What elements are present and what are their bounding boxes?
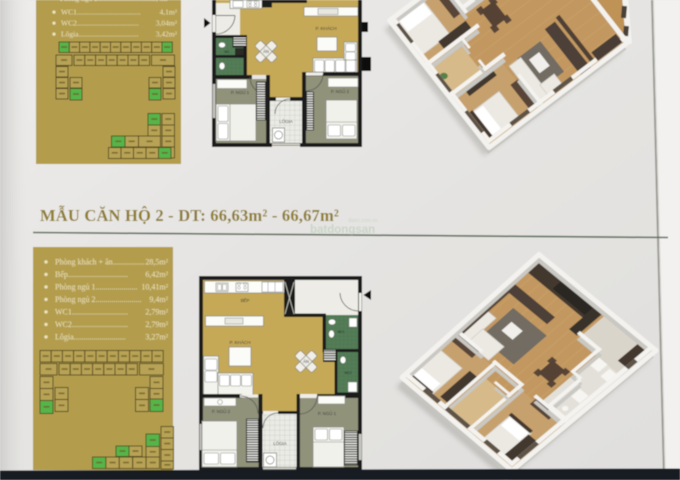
svg-text:3,27m²: 3,27m²	[145, 333, 168, 342]
svg-text:Bếp...........................: Bếp..............................	[55, 270, 128, 279]
svg-text:ĂN: ĂN	[263, 49, 269, 54]
svg-text:3,04m²: 3,04m²	[156, 19, 178, 28]
svg-text:batdongsan: batdongsan	[310, 224, 375, 236]
svg-text:10,41m²: 10,41m²	[141, 283, 168, 292]
svg-text:WC2...........................: WC2.................................	[61, 19, 139, 28]
svg-text:WC: WC	[224, 50, 230, 54]
svg-text:Phòng khách + ăn..............: Phòng khách + ăn................	[55, 258, 145, 267]
svg-text:WC1: WC1	[337, 330, 344, 334]
svg-text:ĂN: ĂN	[303, 359, 309, 364]
svg-text:P. KHÁCH: P. KHÁCH	[229, 339, 250, 345]
svg-text:6,42m²: 6,42m²	[145, 270, 168, 279]
svg-text:MẪU CĂN HỘ 2 - DT: 66,63m² -: MẪU CĂN HỘ 2 - DT: 66,63m² - 66,67m²	[40, 206, 339, 225]
svg-text:2,79m²: 2,79m²	[145, 320, 168, 329]
svg-text:Phòng ngủ 2...................: Phòng ngủ 2.............................…	[60, 0, 171, 3]
svg-text:9,4m²: 9,4m²	[149, 295, 168, 304]
svg-text:LÔGIA: LÔGIA	[273, 441, 286, 446]
svg-text:WC1...........................: WC1..................................	[61, 8, 141, 17]
svg-text:28,5m²: 28,5m²	[145, 258, 168, 267]
svg-text:4,1m²: 4,1m²	[160, 8, 178, 17]
svg-text:Phòng ngủ 1...................: Phòng ngủ 1.....................	[55, 283, 137, 292]
svg-text:LÔGIA: LÔGIA	[279, 119, 292, 124]
svg-text:P. NGỦ 2: P. NGỦ 2	[331, 89, 350, 94]
svg-text:Lôgia.........................: Lôgia................................	[61, 30, 139, 39]
svg-text:WC2: WC2	[344, 371, 351, 375]
svg-text:2,79m²: 2,79m²	[145, 308, 168, 317]
svg-text:3,42m²: 3,42m²	[156, 30, 178, 39]
svg-text:WC2...........................: WC2............................	[55, 320, 128, 329]
svg-text:WC1...........................: WC1............................	[55, 308, 128, 317]
svg-text:BẾP: BẾP	[241, 298, 250, 303]
svg-text:P. NGỦ 2: P. NGỦ 2	[212, 409, 231, 414]
svg-text:P. KHÁCH: P. KHÁCH	[315, 25, 336, 31]
svg-text:Lôgia.........................: Lôgia..........................	[55, 333, 126, 342]
svg-text:Phòng ngủ 2...................: Phòng ngủ 2.......................	[55, 295, 141, 304]
svg-text:P. NGỦ 1: P. NGỦ 1	[231, 90, 250, 95]
svg-text:P. NGỦ 1: P. NGỦ 1	[318, 411, 337, 416]
